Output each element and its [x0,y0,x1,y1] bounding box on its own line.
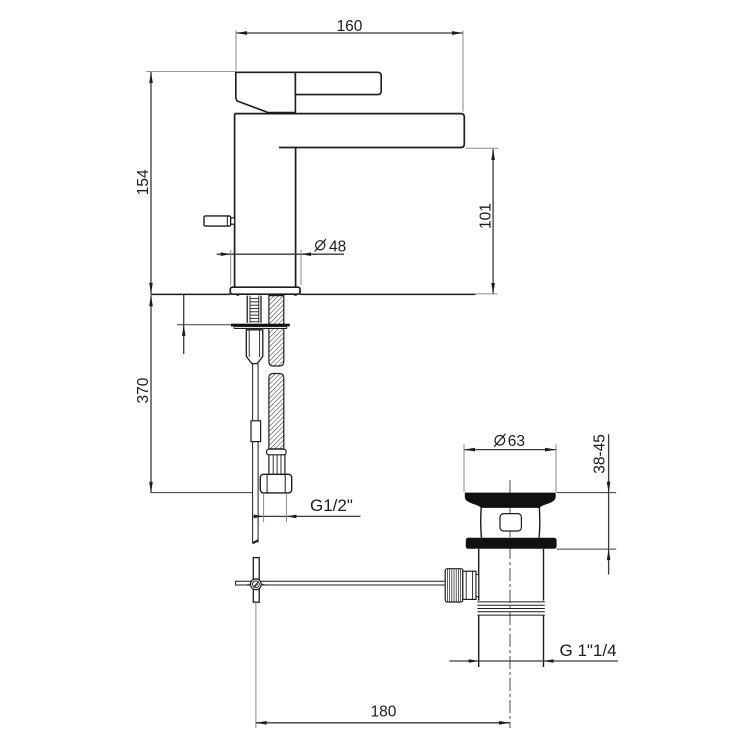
svg-text:G 1"1/4: G 1"1/4 [560,641,617,660]
svg-text:48: 48 [329,238,346,255]
svg-text:154: 154 [135,169,152,195]
svg-text:38-45: 38-45 [592,434,609,474]
svg-text:160: 160 [337,18,363,35]
svg-text:63: 63 [508,433,525,450]
svg-text:370: 370 [135,377,152,403]
svg-text:101: 101 [478,203,495,229]
svg-text:180: 180 [371,704,397,721]
svg-text:G1/2": G1/2" [310,496,353,515]
